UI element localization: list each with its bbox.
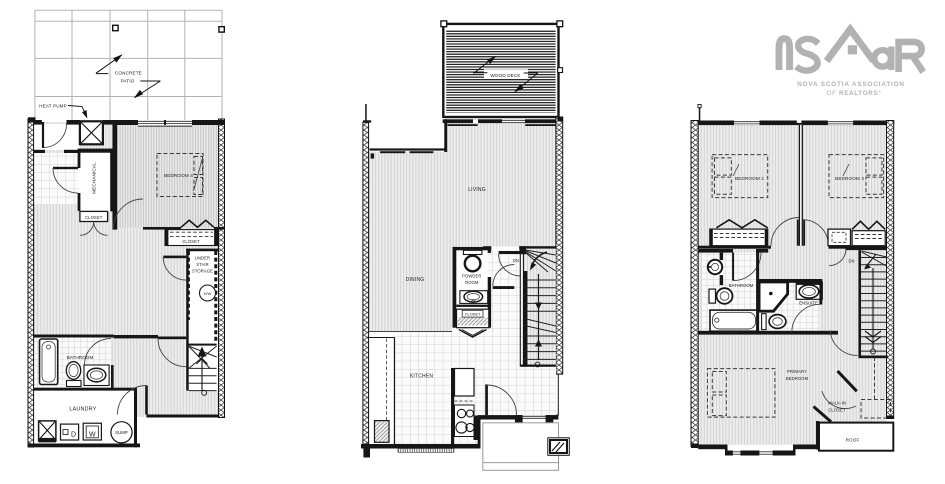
svg-text:D: D (71, 432, 76, 439)
svg-text:NOVA SCOTIA ASSOCIATION: NOVA SCOTIA ASSOCIATION (797, 81, 905, 88)
svg-text:STAIR: STAIR (196, 262, 209, 267)
svg-text:CONCRETE: CONCRETE (115, 71, 142, 76)
svg-text:CLOSET: CLOSET (85, 215, 103, 220)
svg-text:WALK-IN: WALK-IN (828, 401, 846, 406)
svg-text:MECHANICAL: MECHANICAL (92, 162, 97, 194)
svg-text:UNDER: UNDER (195, 256, 210, 261)
svg-text:CLOSET: CLOSET (828, 408, 846, 413)
svg-text:BATHROOM: BATHROOM (729, 283, 754, 288)
svg-text:PATIO: PATIO (121, 79, 135, 84)
svg-text:BEDROOM: BEDROOM (786, 376, 809, 381)
svg-text:W: W (89, 431, 96, 438)
svg-text:STORAGE: STORAGE (192, 269, 213, 274)
svg-text:OF REALTORS®: OF REALTORS® (827, 90, 882, 97)
svg-text:PRIMARY: PRIMARY (787, 369, 807, 374)
svg-text:HEAT PUMP: HEAT PUMP (39, 103, 67, 108)
svg-text:BATHROOM: BATHROOM (67, 355, 94, 360)
svg-text:KITCHEN: KITCHEN (410, 374, 434, 380)
svg-text:DN: DN (849, 259, 855, 264)
svg-text:WOOD DECK: WOOD DECK (490, 73, 521, 78)
svg-text:ROOF: ROOF (846, 438, 860, 443)
svg-text:POWDER: POWDER (462, 274, 481, 279)
svg-text:ROOM: ROOM (465, 280, 479, 285)
svg-text:CLOSET: CLOSET (182, 239, 200, 244)
svg-text:DINING: DINING (406, 277, 425, 283)
svg-text:CLOSET: CLOSET (465, 312, 482, 317)
svg-text:H/W: H/W (204, 292, 212, 296)
svg-text:BEDROOM 2: BEDROOM 2 (735, 176, 764, 181)
svg-text:SUMP: SUMP (115, 430, 128, 435)
svg-text:DN: DN (513, 258, 519, 263)
svg-text:BEDROOM 3: BEDROOM 3 (835, 176, 864, 181)
svg-text:BEDROOM 4: BEDROOM 4 (164, 173, 193, 178)
svg-text:LIVING: LIVING (468, 187, 486, 193)
svg-text:LAUNDRY: LAUNDRY (69, 407, 96, 413)
